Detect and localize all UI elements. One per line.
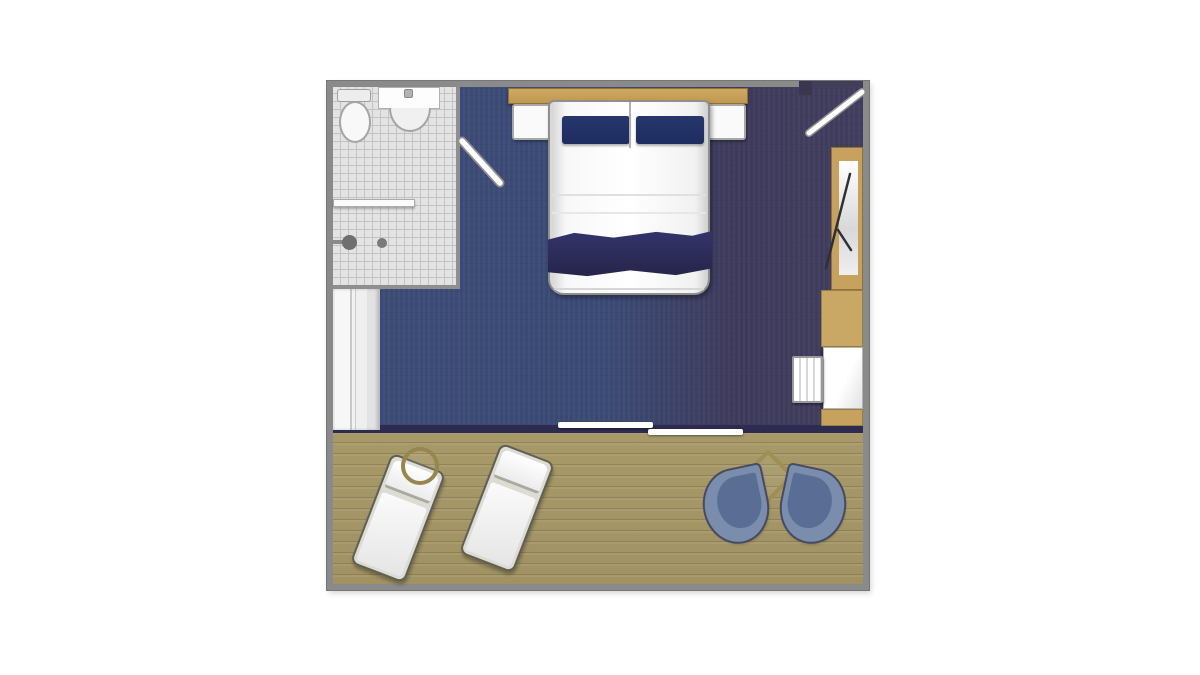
desk-counter bbox=[821, 409, 863, 426]
nightstand-right bbox=[705, 104, 746, 140]
entry-door-jamb bbox=[799, 81, 812, 95]
round-side-table bbox=[401, 447, 439, 485]
sliding-door-panel-left bbox=[558, 422, 653, 428]
duvet-fold-line bbox=[552, 194, 706, 196]
shower-drain-icon bbox=[377, 238, 387, 248]
faucet-icon bbox=[404, 89, 413, 98]
sliding-door-panel-right bbox=[648, 429, 743, 435]
pillow-right bbox=[636, 116, 704, 144]
floor-plan bbox=[327, 81, 869, 590]
stool bbox=[792, 356, 823, 403]
toilet-icon bbox=[339, 101, 371, 143]
sink-basin-icon bbox=[389, 108, 431, 132]
chair-seat bbox=[712, 472, 766, 532]
entry-doorway-gap bbox=[812, 81, 863, 87]
pillow-left bbox=[562, 116, 630, 144]
page: { "colors": { "page-bg": "#ffffff", "out… bbox=[0, 0, 1200, 675]
shower-control-icon bbox=[342, 235, 357, 250]
wardrobe-door-recess bbox=[839, 161, 858, 275]
bed-foot-line bbox=[554, 288, 704, 290]
double-bed bbox=[548, 100, 710, 295]
bed-center-crease bbox=[629, 102, 631, 148]
sofa bbox=[333, 289, 380, 430]
nightstand-left bbox=[512, 104, 553, 140]
duvet-fold-line bbox=[552, 212, 706, 214]
desk bbox=[823, 347, 863, 409]
bathroom-floor bbox=[333, 87, 460, 289]
wardrobe bbox=[831, 147, 863, 290]
chair-seat bbox=[783, 472, 837, 532]
cabinet bbox=[821, 290, 863, 347]
navy-blanket bbox=[548, 230, 712, 278]
towel-bar-icon bbox=[333, 199, 415, 207]
